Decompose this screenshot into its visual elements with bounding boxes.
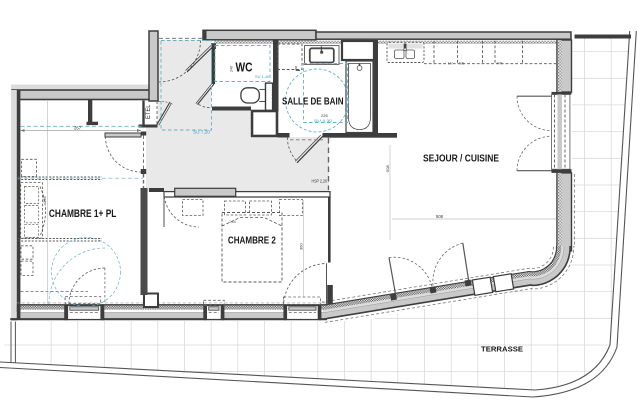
svg-text:LV: LV [448,61,453,66]
svg-text:WC: WC [236,61,253,75]
svg-text:SU 1,40: SU 1,40 [255,74,270,79]
svg-text:SALLE DE BAIN: SALLE DE BAIN [282,96,344,107]
svg-text:HSP 2,20: HSP 2,20 [312,179,328,184]
svg-text:508: 508 [385,165,390,172]
svg-text:267: 267 [74,126,82,131]
svg-text:SU 4,30: SU 4,30 [314,118,333,123]
svg-text:FR: FR [497,61,502,66]
svg-text:240: 240 [230,66,234,72]
svg-text:TERRASSE: TERRASSE [481,345,523,354]
svg-text:SE: SE [459,61,465,66]
svg-text:360: 360 [299,243,304,250]
svg-text:CHAMBRE 1+ PL: CHAMBRE 1+ PL [49,208,117,220]
svg-text:ETEL: ETEL [145,104,152,119]
svg-text:SEJOUR / CUISINE: SEJOUR / CUISINE [423,154,499,165]
svg-text:CHAMBRE 2: CHAMBRE 2 [228,236,276,247]
svg-text:508: 508 [436,214,444,219]
svg-text:SU 7,20: SU 7,20 [193,130,211,135]
svg-text:355: 355 [42,196,47,203]
svg-text:1,60: 1,60 [229,220,236,224]
